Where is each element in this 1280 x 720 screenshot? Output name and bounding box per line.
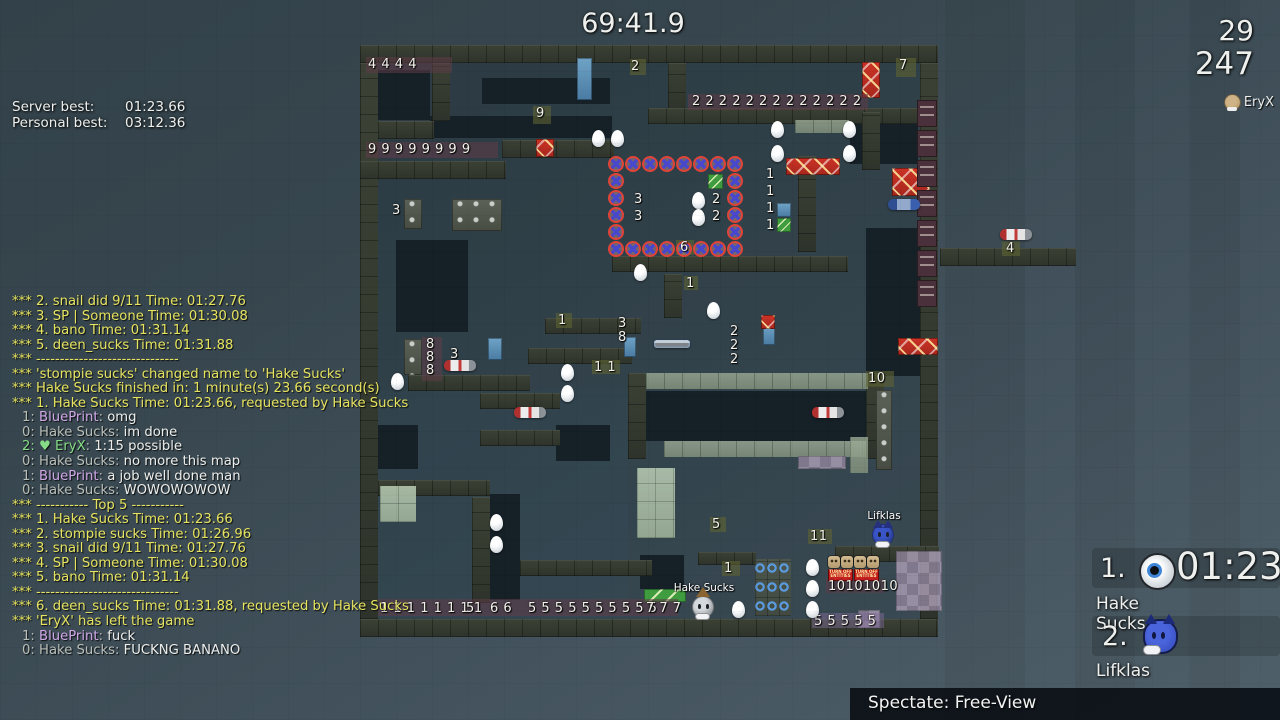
map-dark-room	[378, 70, 430, 120]
chat-line: 0: Hake Sucks: WOWOWOWOW	[12, 484, 409, 499]
map-number-label: 4 4 4 4	[368, 58, 417, 72]
no-entry-tile	[608, 156, 624, 172]
map-blue-tile	[488, 338, 502, 360]
map-number-label: 2	[631, 60, 640, 74]
egg-pickup	[490, 514, 503, 531]
map-number-label: 5	[466, 602, 475, 616]
smiley-tile	[867, 556, 879, 568]
player-lifklas: Lifklas	[872, 524, 896, 548]
map-number-label: 1	[558, 314, 567, 328]
egg-pickup	[771, 121, 784, 138]
map-number-label: 3	[618, 317, 627, 331]
personal-best-label: Personal best:	[12, 115, 125, 131]
robot-avatar-icon	[1139, 553, 1176, 590]
credits-tile	[917, 100, 937, 127]
map-freeze-tiles	[798, 456, 846, 469]
map-dark-room	[430, 116, 612, 138]
map-number-label: 7	[899, 59, 908, 73]
map-wall	[664, 274, 682, 318]
leaderboard-rank-2: 2.	[1102, 621, 1128, 652]
map-grey-tile	[452, 199, 502, 231]
no-entry-tile	[727, 173, 743, 189]
no-entry-tile	[727, 156, 743, 172]
map-sage-tiles	[646, 373, 868, 389]
top-right-counters: 29 247	[1195, 16, 1254, 81]
egg-pickup	[692, 209, 705, 226]
egg-pickup	[611, 130, 624, 147]
credits-tile	[917, 190, 937, 217]
map-number-label: 6	[680, 241, 689, 255]
chat-line: 2: ♥ EryX: 1:15 possible	[12, 440, 409, 455]
tee-hat	[696, 587, 710, 597]
map-freeze-tiles	[896, 551, 942, 611]
map-blue-tile	[777, 203, 791, 217]
map-number-label: 2	[730, 353, 739, 367]
cat-avatar-icon	[1143, 619, 1178, 654]
map-number-label: 3	[634, 193, 643, 207]
map-number-label: 10	[868, 372, 886, 386]
no-entry-tile	[727, 224, 743, 240]
egg-pickup	[561, 364, 574, 381]
chat-line: 1: BluePrint: omg	[12, 411, 409, 426]
egg-pickup	[843, 121, 856, 138]
chat-line: 1: BluePrint: fuck	[12, 630, 409, 645]
map-danger-tile	[536, 139, 554, 157]
map-number-label: 1	[686, 277, 695, 291]
credits-tile	[917, 130, 937, 157]
grenade-pickup	[1000, 229, 1032, 240]
spectating-player-name: EryX	[1244, 95, 1274, 110]
no-entry-tile	[710, 156, 726, 172]
map-number-label: 9	[536, 107, 545, 121]
personal-best-value: 03:12.36	[125, 115, 185, 131]
map-number-label: 10101010	[828, 580, 898, 594]
server-best-value: 01:23.66	[125, 99, 185, 115]
map-number-label: 5 5 5 5 5 5 5 5 5 5	[528, 602, 657, 616]
spectating-player-indicator: EryX	[1224, 94, 1274, 111]
chat-line: *** Hake Sucks finished in: 1 minute(s) …	[12, 382, 409, 397]
chat-line: *** 3. snail did 9/11 Time: 01:27.76	[12, 542, 409, 557]
egg-pickup	[732, 601, 745, 618]
no-entry-tile	[659, 156, 675, 172]
map-number-label: 2	[712, 193, 721, 207]
credits-tile	[917, 220, 937, 247]
tee-body	[692, 596, 714, 618]
no-entry-tile	[608, 173, 624, 189]
player-hake-sucks: Hake Sucks	[692, 596, 716, 620]
map-grey-tile	[876, 390, 892, 470]
no-entry-tile	[642, 156, 658, 172]
chat-line: *** 6. deen_sucks Time: 01:31.88, reques…	[12, 600, 409, 615]
chat-line: *** 5. bano Time: 01:31.14	[12, 571, 409, 586]
egg-pickup	[490, 536, 503, 553]
map-green-tile	[777, 218, 791, 232]
chat-line: *** 'EryX' has left the game	[12, 615, 409, 630]
no-entry-tile	[608, 241, 624, 257]
smiley-tile	[841, 556, 853, 568]
egg-pickup	[771, 145, 784, 162]
map-wall	[520, 560, 652, 576]
server-best-label: Server best:	[12, 99, 125, 115]
tee-eyes	[878, 532, 881, 537]
egg-pickup	[592, 130, 605, 147]
leaderboard-rank-1: 1.	[1100, 553, 1126, 584]
map-danger-tile	[761, 315, 775, 329]
credits-tile	[917, 250, 937, 277]
map-number-label: 7 7 7	[646, 602, 682, 616]
no-entry-tile	[710, 241, 726, 257]
egg-pickup	[806, 580, 819, 597]
grenade-pickup	[514, 407, 546, 418]
map-number-label: 1 1	[594, 361, 616, 375]
tee-feet	[875, 541, 890, 548]
no-entry-tile	[727, 207, 743, 223]
chat-line: 0: Hake Sucks: FUCKNG BANANO	[12, 644, 409, 659]
no-entry-tile	[625, 156, 641, 172]
grenade-pickup	[812, 407, 844, 418]
chat-line: *** 1. Hake Sucks Time: 01:23.66	[12, 513, 409, 528]
credits-tile	[917, 160, 937, 187]
server-best-row: Server best: 01:23.66	[12, 99, 185, 115]
map-number-label: 1	[766, 219, 775, 233]
chat-line: *** 2. snail did 9/11 Time: 01:27.76	[12, 295, 409, 310]
map-wall	[378, 121, 434, 139]
map-wall	[628, 373, 646, 459]
egg-pickup	[692, 192, 705, 209]
chat-line: *** 3. SP | Someone Time: 01:30.08	[12, 310, 409, 325]
map-mint-tiles	[637, 468, 675, 538]
smiley-tile	[854, 556, 866, 568]
map-number-label: 4	[1006, 242, 1015, 256]
no-entry-tile	[642, 241, 658, 257]
shotgun-pickup	[888, 199, 920, 210]
map-wall	[668, 63, 686, 111]
spectate-mode-text: Spectate: Free-View	[868, 693, 1036, 713]
map-wall	[472, 497, 490, 603]
egg-pickup	[806, 601, 819, 618]
map-wall	[480, 430, 560, 446]
map-wall	[862, 112, 880, 170]
chat-line: *** ------------------------------	[12, 353, 409, 368]
grenade-pickup	[444, 360, 476, 371]
map-danger-tile	[898, 338, 938, 355]
tee-eyes	[698, 604, 701, 609]
personal-best-row: Personal best: 03:12.36	[12, 115, 185, 131]
race-timer: 69:41.9	[581, 8, 685, 39]
no-entry-tile	[727, 241, 743, 257]
counter-secondary: 247	[1195, 47, 1254, 81]
map-danger-tile	[862, 62, 880, 98]
chat-line: *** 4. bano Time: 01:31.14	[12, 324, 409, 339]
leaderboard-time-1: 01:23	[1176, 545, 1280, 588]
egg-pickup	[806, 559, 819, 576]
map-number-label: 3	[634, 210, 643, 224]
map-number-label: 8	[426, 364, 435, 378]
chat-log: *** 2. snail did 9/11 Time: 01:27.76*** …	[12, 295, 409, 659]
map-number-label: 5 5 5 5 5	[814, 615, 876, 629]
avatar-eyes	[1152, 632, 1156, 639]
no-entry-tile	[693, 156, 709, 172]
laser-pickup	[654, 340, 690, 348]
credits-tile	[917, 280, 937, 307]
no-entry-tile	[659, 241, 675, 257]
chat-line: 1: BluePrint: a job well done man	[12, 470, 409, 485]
map-number-label: 11	[810, 530, 828, 544]
map-blue-tile	[577, 58, 592, 100]
map-number-label: 2	[730, 339, 739, 353]
map-dark-room	[850, 118, 918, 164]
map-number-label: 1	[766, 185, 775, 199]
smiley-tile	[828, 556, 840, 568]
map-decor-tiles	[755, 559, 791, 616]
map-sage-tiles	[795, 120, 849, 133]
map-number-label: 2 2 2 2 2 2 2 2 2 2 2 2 2	[692, 95, 862, 109]
map-number-label: 6 6	[490, 602, 512, 616]
map-number-label: 1	[766, 168, 775, 182]
egg-pickup	[561, 385, 574, 402]
best-times-panel: Server best: 01:23.66 Personal best: 03:…	[12, 99, 185, 131]
tee-avatar-icon	[1224, 94, 1241, 111]
map-number-label: 3	[392, 204, 401, 218]
spectate-mode-bar[interactable]: Spectate: Free-View	[850, 688, 1280, 720]
no-entry-tile	[608, 224, 624, 240]
map-sage-tiles	[850, 437, 868, 473]
map-number-label: 2	[730, 325, 739, 339]
map-number-label: 5	[712, 518, 721, 532]
no-entry-tile	[676, 156, 692, 172]
chat-line: 0: Hake Sucks: no more this map	[12, 455, 409, 470]
egg-pickup	[843, 145, 856, 162]
map-number-label: 1	[766, 202, 775, 216]
map-dark-room	[556, 425, 610, 461]
map-green-tile	[708, 174, 723, 189]
chat-line: *** 5. deen_sucks Time: 01:31.88	[12, 339, 409, 354]
no-entry-tile	[693, 241, 709, 257]
map-number-label: 2	[712, 210, 721, 224]
map-wall	[612, 256, 848, 272]
map-wall	[360, 161, 506, 179]
tee-body	[872, 524, 894, 546]
egg-pickup	[707, 302, 720, 319]
no-entry-tile	[727, 190, 743, 206]
map-grey-tile	[404, 199, 422, 229]
leaderboard-name-2: Lifklas	[1096, 661, 1150, 681]
map-number-label: 1	[724, 562, 733, 576]
counter-primary: 29	[1195, 16, 1254, 47]
no-entry-tile	[625, 241, 641, 257]
game-screen: { "hud": { "timer": "69:41.9", "top_righ…	[0, 0, 1280, 720]
no-entry-tile	[608, 207, 624, 223]
map-number-label: 8	[618, 331, 627, 345]
egg-pickup	[634, 264, 647, 281]
no-entry-tile	[608, 190, 624, 206]
avatar-feet	[1143, 645, 1161, 655]
map-sage-tiles	[664, 441, 866, 457]
map-danger-tile	[786, 158, 840, 175]
map-number-label: 9 9 9 9 9 9 9 9	[368, 143, 471, 157]
tee-feet	[695, 613, 710, 620]
